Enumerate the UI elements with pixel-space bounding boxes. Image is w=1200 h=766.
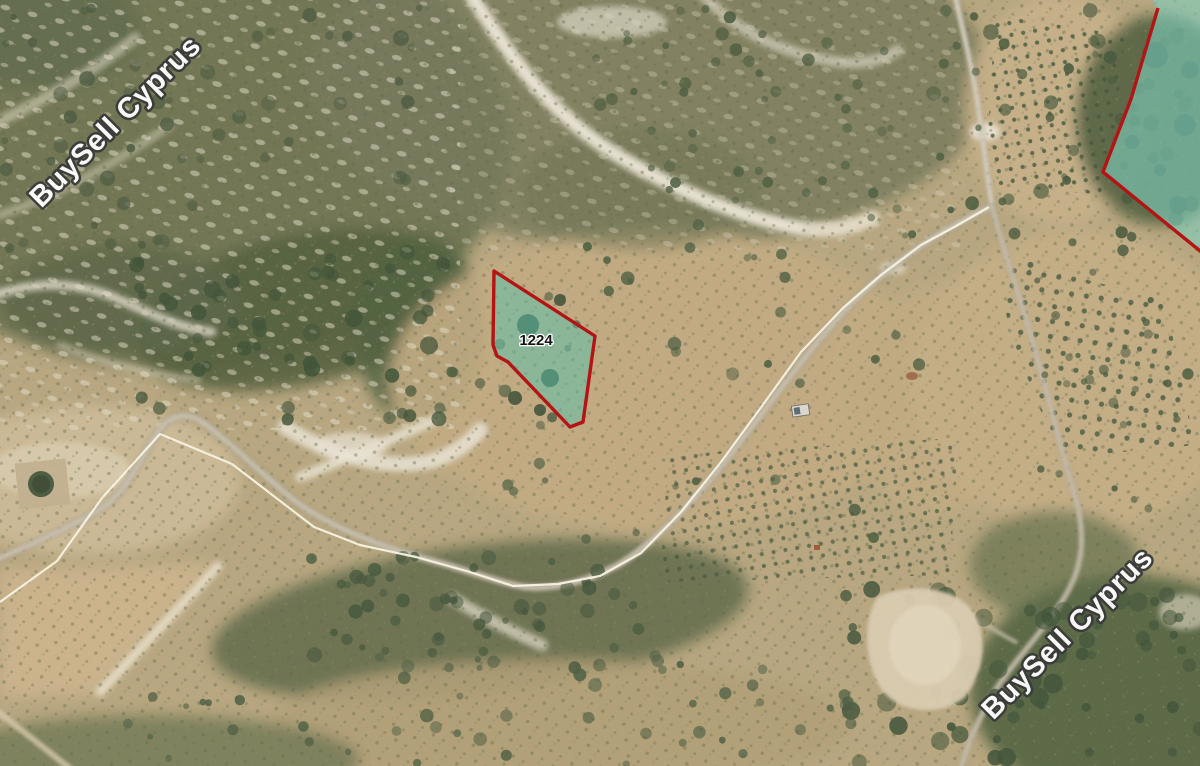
parcel-label: 1224	[519, 332, 553, 349]
noise-overlay	[0, 0, 1200, 766]
map-canvas[interactable]: 1224 BuySell Cyprus BuySell Cyprus	[0, 0, 1200, 766]
satellite-map[interactable]: 1224 BuySell Cyprus BuySell Cyprus	[0, 0, 1200, 766]
